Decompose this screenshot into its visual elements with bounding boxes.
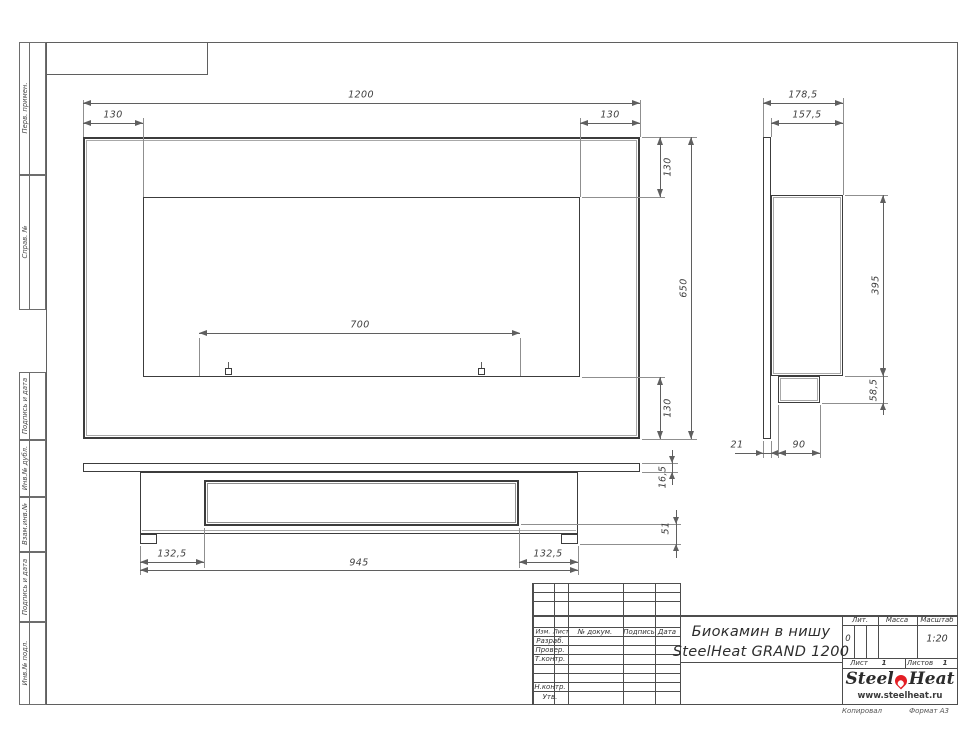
- dim-line-total-width: [83, 103, 640, 104]
- title-block-line: [532, 592, 680, 593]
- title-block-line: [866, 625, 867, 658]
- extension-line: [580, 118, 581, 197]
- front-view-niche-opening: [143, 197, 580, 377]
- dim-label-burner-depth: 90: [793, 440, 806, 451]
- dim-label-burner-height: 58,5: [869, 379, 880, 402]
- extension-line: [642, 439, 697, 440]
- top-left-stamp-box: [46, 42, 208, 75]
- extension-line: [763, 441, 764, 458]
- dim-line-left-margin: [140, 562, 204, 563]
- title-block-line: [878, 615, 879, 658]
- dim-arrow: [673, 517, 679, 524]
- title-block-line: [842, 625, 958, 626]
- lit-header: Лит.: [852, 616, 868, 624]
- margin-box-divider: [29, 623, 30, 704]
- bottom-view-foot-left: [140, 534, 157, 544]
- dim-line-right-margin: [519, 562, 578, 563]
- title-block-line: [905, 658, 906, 668]
- dim-label-top-offset: 130: [663, 157, 674, 176]
- margin-box-divider: [29, 43, 30, 174]
- margin-label: Взам.инв.№: [21, 503, 29, 545]
- margin-box-divider: [29, 441, 30, 496]
- row-label-utv: Утв.: [543, 693, 558, 701]
- dim-label-left-offset: 130: [103, 110, 122, 121]
- col-header-data: Дата: [658, 628, 676, 636]
- document-title-line2: SteelHeat GRAND 1200: [673, 644, 850, 660]
- title-block-line: [532, 601, 680, 602]
- extension-line: [580, 544, 681, 545]
- title-block-line: [680, 662, 842, 663]
- title-block-line: [532, 664, 680, 665]
- dim-arrow: [880, 369, 886, 376]
- extension-line: [822, 403, 888, 404]
- footer-kopiroval: Копировал: [842, 707, 882, 715]
- extension-line: [143, 118, 144, 197]
- margin-label: Справ. №: [21, 225, 29, 258]
- bottom-view-body-inner-line: [142, 530, 576, 531]
- side-view-burner-box: [778, 376, 820, 403]
- margin-label: Подпись и дата: [21, 559, 29, 615]
- title-block-line: [532, 673, 680, 674]
- extension-line: [582, 197, 665, 198]
- dim-arrow: [673, 544, 679, 551]
- bottom-view-slot: [204, 480, 519, 526]
- mount-clip-right: [478, 368, 485, 375]
- dim-arrow: [771, 450, 778, 456]
- dim-label-bottom-offset: 130: [663, 398, 674, 417]
- col-header-docnum: № докум.: [578, 628, 613, 636]
- dim-label-total-depth: 178,5: [788, 90, 817, 101]
- col-header-podpis: Подпись: [623, 628, 655, 636]
- margin-box-divider: [29, 498, 30, 551]
- extension-line: [845, 376, 888, 377]
- extension-line: [582, 377, 665, 378]
- dim-line-body-width: [140, 570, 578, 571]
- dim-label-body-width: 945: [349, 558, 368, 569]
- dim-label-total-width: 1200: [348, 90, 374, 101]
- title-block-line: [532, 691, 680, 692]
- row-label-prover: Провер.: [535, 646, 564, 654]
- sheet-label: Лист: [850, 659, 868, 667]
- masshtab-value: 1:20: [926, 634, 947, 645]
- dim-label-right-margin: 132,5: [533, 549, 562, 560]
- lit-value: 0: [845, 634, 850, 644]
- dim-label-left-margin: 132,5: [157, 549, 186, 560]
- extension-line: [820, 405, 821, 458]
- dim-line-right-offset: [580, 123, 640, 124]
- title-block-border: [957, 615, 959, 705]
- extension-line: [520, 338, 521, 376]
- dim-label-total-height: 650: [679, 278, 690, 297]
- footer-format: Формат А3: [909, 707, 949, 715]
- extension-line: [521, 524, 681, 525]
- row-label-nkontr: Н.контр.: [534, 683, 565, 691]
- dim-line-total-height: [691, 137, 692, 439]
- margin-box-divider: [29, 553, 30, 621]
- flame-icon: [895, 671, 908, 687]
- dim-line-body-depth: [771, 123, 843, 124]
- title-block-line: [917, 615, 918, 658]
- side-view-body-inner-line: [773, 197, 841, 374]
- drawing-sheet: Перв. примен. Справ. № Подпись и дата Ин…: [0, 0, 970, 749]
- dim-label-mount-spacing: 700: [350, 320, 369, 331]
- dim-line-left-offset: [83, 123, 143, 124]
- document-title-line1: Биокамин в нишу: [692, 624, 831, 640]
- dim-arrow: [756, 450, 763, 456]
- logo-text-steel: Steel: [846, 669, 894, 689]
- dim-label-body-height: 395: [871, 275, 882, 294]
- sheet-value: 1: [882, 659, 887, 667]
- dim-arrow: [669, 456, 675, 463]
- title-block-border: [532, 704, 958, 706]
- dim-label-depth: 51: [661, 522, 672, 535]
- massa-header: Масса: [886, 616, 908, 624]
- margin-label: Инв.№ подл.: [21, 641, 29, 686]
- col-header-list: Лист: [553, 628, 569, 635]
- dim-line-total-depth: [763, 103, 843, 104]
- dim-line-top-offset: [660, 137, 661, 197]
- title-block: Изм. Лист № докум. Подпись Дата Разраб. …: [532, 583, 958, 705]
- title-block-line: [854, 625, 855, 658]
- dim-line-mount-spacing: [199, 333, 520, 334]
- margin-label: Подпись и дата: [21, 378, 29, 434]
- dim-line-burner-depth: [778, 453, 820, 454]
- mount-clip-left: [225, 368, 232, 375]
- bottom-view-panel-bar: [83, 463, 640, 472]
- sheets-label: Листов: [907, 659, 933, 667]
- dim-label-panel-thickness: 21: [731, 440, 744, 451]
- steelheat-logo: Steel Heat: [842, 670, 958, 688]
- col-header-izm: Изм.: [536, 628, 551, 635]
- dim-label-panel-thickness-bottom: 16,5: [658, 466, 669, 489]
- side-view-burner-inner-line: [780, 378, 818, 401]
- margin-label: Перв. примен.: [21, 82, 29, 133]
- dim-arrow: [880, 403, 886, 410]
- extension-line: [640, 100, 641, 137]
- row-label-razrab: Разраб.: [536, 637, 564, 645]
- margin-box-divider: [29, 373, 30, 439]
- extension-line: [578, 546, 579, 575]
- bottom-view-foot-right: [561, 534, 578, 544]
- extension-line: [199, 338, 200, 376]
- sheets-value: 1: [943, 659, 948, 667]
- side-view-front-panel: [763, 137, 771, 439]
- extension-line: [204, 528, 205, 568]
- logo-url: www.steelheat.ru: [858, 691, 943, 701]
- title-block-line: [842, 615, 843, 705]
- dim-line-bottom-offset: [660, 377, 661, 439]
- bottom-view-slot-inner-line: [207, 483, 516, 523]
- dim-label-body-depth: 157,5: [792, 110, 821, 121]
- dim-line-body-height: [883, 195, 884, 376]
- dim-arrow: [669, 472, 675, 479]
- logo-text-heat: Heat: [909, 669, 955, 689]
- side-view-body: [771, 195, 843, 376]
- extension-line: [843, 98, 844, 195]
- margin-box-divider: [29, 176, 30, 309]
- margin-label: Инв.№ дубл.: [21, 446, 29, 490]
- row-label-tkontr: Т.контр.: [535, 655, 565, 663]
- masshtab-header: Масштаб: [920, 616, 953, 624]
- dim-label-right-offset: 130: [600, 110, 619, 121]
